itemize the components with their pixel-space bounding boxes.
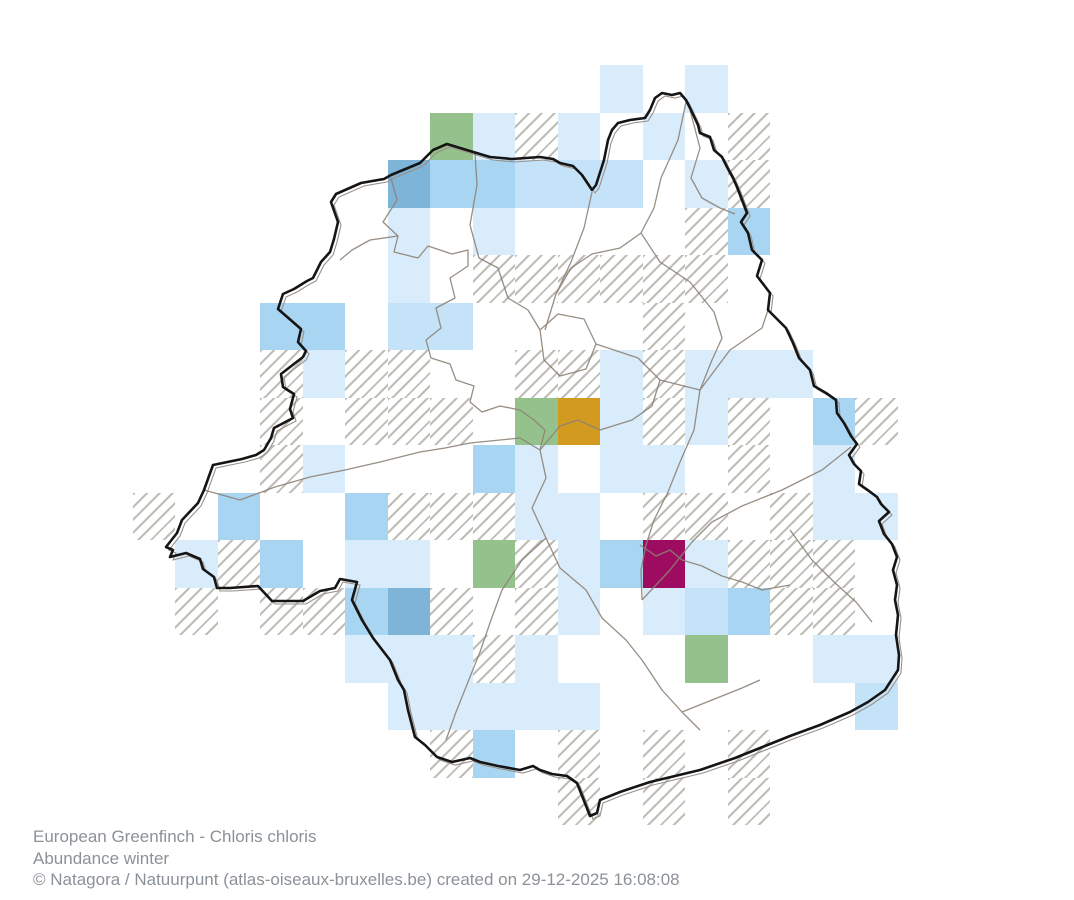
region-boundary-companion-line xyxy=(169,96,902,819)
region-boundary-line xyxy=(166,93,899,816)
map-subtitle: Abundance winter xyxy=(33,848,680,870)
municipal-boundary-lines xyxy=(204,102,872,740)
boundary-lines-layer xyxy=(0,0,1074,900)
map-canvas: European Greenfinch - Chloris chloris Ab… xyxy=(0,0,1074,900)
caption-block: European Greenfinch - Chloris chloris Ab… xyxy=(33,826,680,891)
copyright-line: © Natagora / Natuurpunt (atlas-oiseaux-b… xyxy=(33,869,680,891)
species-title: European Greenfinch - Chloris chloris xyxy=(33,826,680,848)
